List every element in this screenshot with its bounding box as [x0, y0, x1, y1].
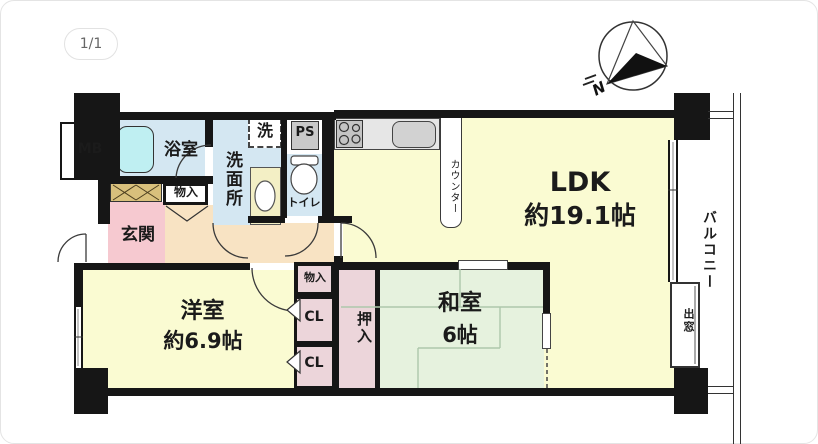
label-ps: PS — [292, 126, 318, 140]
shoe-cabinet — [110, 183, 162, 202]
label-bay-window: 出窓 — [676, 298, 694, 344]
wall-segment — [334, 262, 550, 270]
pillar-bottom-left — [74, 368, 108, 414]
label-futon-closet: 押入 — [346, 298, 372, 358]
label-washer: 洗 — [252, 122, 278, 140]
label-closet-2: CL — [300, 356, 328, 371]
label-storage-top: 物入 — [166, 186, 206, 199]
label-counter: カウンター — [444, 140, 459, 232]
western-room-window — [74, 307, 83, 368]
wall-segment — [334, 110, 676, 118]
door-opening — [334, 223, 343, 256]
railing-connector — [708, 386, 733, 394]
label-ldk-name: LDK — [500, 168, 660, 198]
hallway-upper — [165, 205, 213, 223]
floor-plan: N LDK 約19.1帖 洋室 約6.9帖 和室 6帖 玄関 浴室 洗面所 洗 … — [0, 0, 818, 444]
railing-connector — [708, 111, 733, 119]
label-western-size: 約6.9帖 — [138, 330, 268, 353]
pillar-top-left — [74, 93, 120, 178]
wall-segment — [74, 263, 250, 270]
balcony-window — [668, 140, 678, 282]
door-arc — [58, 234, 86, 262]
wall-segment — [248, 216, 285, 223]
label-storage-mid: 物入 — [298, 272, 332, 284]
kitchen-sink — [392, 121, 436, 148]
label-ldk-size: 約19.1帖 — [495, 202, 665, 230]
balcony-railing — [733, 93, 741, 444]
label-western-name: 洋室 — [150, 300, 255, 324]
stove — [336, 120, 363, 148]
label-balcony: バルコニー — [696, 182, 716, 317]
label-closet-1: CL — [300, 310, 328, 325]
label-entrance: 玄関 — [110, 226, 166, 245]
wall-segment — [543, 262, 550, 315]
label-bathroom: 浴室 — [152, 141, 210, 160]
wall-segment — [110, 112, 336, 120]
wall-segment — [74, 388, 676, 396]
label-toilet: トイレ — [284, 197, 324, 209]
label-japanese-size: 6帖 — [430, 324, 490, 347]
compass-north-label: N — [589, 78, 609, 100]
label-mb: MB — [76, 142, 104, 157]
bathtub — [117, 126, 154, 173]
sliding-door-panel — [542, 313, 551, 349]
wall-segment — [106, 176, 213, 184]
label-japanese-name: 和室 — [425, 292, 495, 316]
wall-segment — [98, 178, 110, 224]
sliding-door-panel — [458, 260, 508, 270]
wall-segment — [318, 216, 352, 223]
label-washroom: 洗面所 — [215, 133, 241, 225]
pillar-bottom-right — [674, 368, 708, 414]
pillar-top-right — [674, 93, 710, 140]
compass-north-icon: N — [583, 21, 667, 100]
hallway — [165, 223, 335, 263]
